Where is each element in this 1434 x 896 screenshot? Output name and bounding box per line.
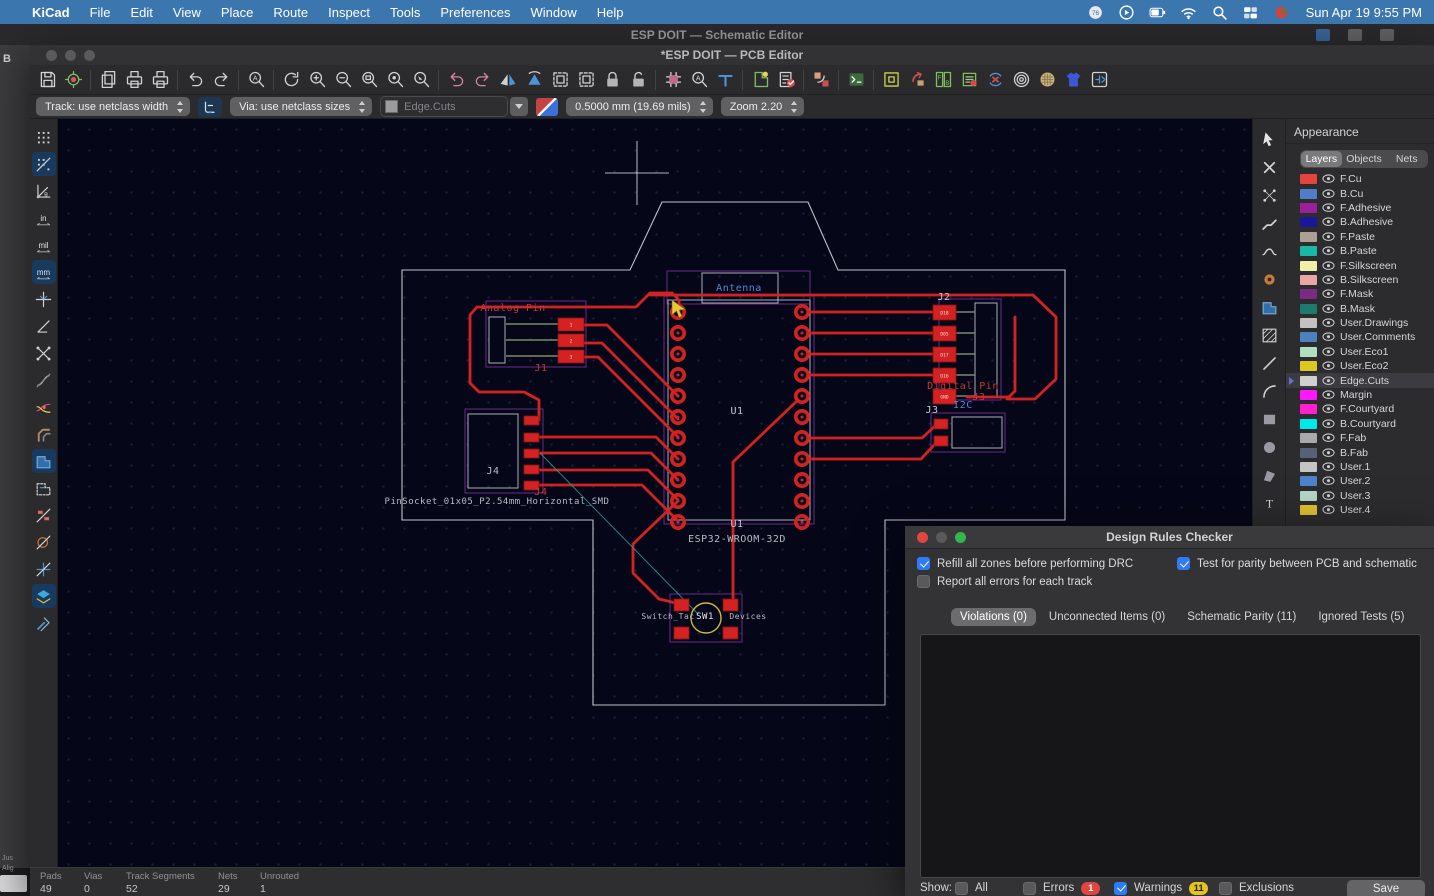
copper-trace[interactable] bbox=[731, 400, 798, 604]
add-filled-zone-tool[interactable] bbox=[1258, 295, 1282, 319]
draw-circle-tool[interactable] bbox=[1258, 435, 1282, 459]
checkbox[interactable] bbox=[1177, 557, 1190, 570]
silkscreen-label: Devices bbox=[729, 612, 766, 621]
track-width-dropdown[interactable]: Track: use netclass width bbox=[36, 97, 190, 116]
silkscreen-label: ESP32-WROOM-32D bbox=[688, 534, 786, 545]
filter-label: All bbox=[975, 882, 988, 894]
menu-view[interactable]: View bbox=[163, 5, 211, 20]
smd-pad[interactable] bbox=[674, 599, 689, 611]
rotate-ccw-button[interactable] bbox=[443, 67, 469, 93]
free-angle-mode-toggle[interactable] bbox=[32, 314, 56, 338]
battery-icon[interactable] bbox=[1149, 5, 1166, 20]
layer-row-b.cu[interactable]: B.Cu bbox=[1286, 186, 1434, 200]
status-value: 0 bbox=[84, 883, 102, 895]
menu-kicad[interactable]: KiCad bbox=[22, 5, 80, 20]
screen: ESP DOIT — Schematic Editor B Jus Alig *… bbox=[0, 0, 1434, 896]
visibility-eye-icon[interactable] bbox=[1322, 448, 1335, 458]
checkbox[interactable] bbox=[1114, 882, 1127, 895]
visibility-eye-icon[interactable] bbox=[1322, 347, 1335, 357]
layer-row-f.adhesive[interactable]: F.Adhesive bbox=[1286, 201, 1434, 215]
flip-vertical-button[interactable] bbox=[521, 67, 547, 93]
drc-tab-schematic[interactable]: Schematic Parity (11) bbox=[1178, 608, 1305, 626]
layer-name: B.Cu bbox=[1340, 188, 1363, 200]
units-mm-toggle[interactable]: mm bbox=[32, 260, 56, 284]
3d-viewer-button[interactable] bbox=[1060, 67, 1086, 93]
smd-pad[interactable] bbox=[674, 627, 689, 639]
layer-name: User.2 bbox=[1340, 475, 1370, 487]
appearance-tab-objects[interactable]: Objects bbox=[1344, 151, 1385, 167]
smd-pad[interactable] bbox=[524, 449, 539, 458]
layer-color-swatch[interactable] bbox=[1300, 491, 1317, 501]
layer-name: User.Drawings bbox=[1340, 317, 1408, 329]
status-label: Nets bbox=[218, 871, 238, 882]
zoom-to-selection-button[interactable] bbox=[408, 67, 434, 93]
layer-row-user.drawings[interactable]: User.Drawings bbox=[1286, 316, 1434, 330]
visibility-eye-icon[interactable] bbox=[1322, 505, 1335, 515]
zoom-out-button[interactable] bbox=[330, 67, 356, 93]
edit-footprints-button[interactable] bbox=[660, 67, 686, 93]
settings-toolbar: Track: use netclass width Via: use netcl… bbox=[30, 95, 1434, 119]
via-size-value: Via: use netclass sizes bbox=[239, 101, 350, 113]
play-icon[interactable] bbox=[1118, 5, 1135, 20]
drc-titlebar[interactable]: Design Rules Checker bbox=[905, 526, 1434, 549]
layer-row-user.eco2[interactable]: User.Eco2 bbox=[1286, 359, 1434, 373]
schematic-toolbar-icons bbox=[1316, 29, 1394, 41]
visibility-eye-icon[interactable] bbox=[1322, 203, 1335, 213]
pad-label: 1 bbox=[570, 323, 573, 329]
drc-option-checkbox[interactable]: Report all errors for each track bbox=[917, 575, 1092, 588]
status-label: Vias bbox=[84, 871, 102, 882]
visibility-eye-icon[interactable] bbox=[1322, 261, 1335, 271]
layer-row-b.silkscreen[interactable]: B.Silkscreen bbox=[1286, 273, 1434, 287]
layer-name: B.Fab bbox=[1340, 447, 1368, 459]
menu-edit[interactable]: Edit bbox=[121, 5, 163, 20]
layer-color-swatch[interactable] bbox=[1300, 275, 1317, 285]
menu-file[interactable]: File bbox=[80, 5, 121, 20]
smd-pad[interactable] bbox=[934, 436, 948, 446]
layer-color-swatch[interactable] bbox=[1300, 304, 1317, 314]
svg-text:θ: θ bbox=[44, 191, 48, 198]
flip-board-view-button[interactable] bbox=[878, 67, 904, 93]
layer-row-b.courtyard[interactable]: B.Courtyard bbox=[1286, 417, 1434, 431]
menubar-status-area: 76 Sun Apr 19 9:55 PM bbox=[1087, 5, 1434, 20]
pad-hole bbox=[801, 521, 804, 524]
grid-size-dropdown[interactable]: 0.5000 mm (19.69 mils) bbox=[566, 97, 713, 116]
pad-hole bbox=[677, 395, 680, 398]
layer-row-user.eco1[interactable]: User.Eco1 bbox=[1286, 345, 1434, 359]
footprint-position-file-button[interactable]: FB bbox=[930, 67, 956, 93]
layer-color-swatch[interactable] bbox=[1300, 505, 1317, 515]
units-mils-toggle[interactable]: mil bbox=[32, 233, 56, 257]
zoom-to-fit-button[interactable] bbox=[356, 67, 382, 93]
search-footprints-button[interactable]: A bbox=[686, 67, 712, 93]
pad-hole bbox=[801, 458, 804, 461]
status-track-segments: Track Segments52 bbox=[126, 871, 195, 895]
pcb-window-title: *ESP DOIT — PCB Editor bbox=[30, 48, 1434, 62]
layer-color-swatch[interactable] bbox=[1300, 361, 1317, 371]
smd-pad[interactable] bbox=[723, 627, 738, 639]
pad-hole bbox=[801, 479, 804, 482]
local-ratsnest-tool[interactable] bbox=[1258, 183, 1282, 207]
fab-outline bbox=[489, 317, 505, 363]
checkbox[interactable] bbox=[1219, 882, 1232, 895]
layer-color-swatch[interactable] bbox=[1300, 419, 1317, 429]
silkscreen-label: Digital Pin bbox=[927, 381, 999, 392]
drc-violations-list[interactable] bbox=[920, 634, 1421, 878]
page-settings-button[interactable] bbox=[95, 67, 121, 93]
pad-hole bbox=[677, 374, 680, 377]
layer-row-b.adhesive[interactable]: B.Adhesive bbox=[1286, 215, 1434, 229]
drill-origin-button[interactable] bbox=[712, 67, 738, 93]
schematic-window-titlebar[interactable]: ESP DOIT — Schematic Editor bbox=[0, 24, 1434, 46]
layer-name: F.Silkscreen bbox=[1340, 260, 1397, 272]
grid-overrides-toggle[interactable] bbox=[32, 152, 56, 176]
chevron-updown-icon bbox=[176, 101, 184, 113]
layer-row-f.fab[interactable]: F.Fab bbox=[1286, 431, 1434, 445]
flip-horizontal-button[interactable] bbox=[495, 67, 521, 93]
silkscreen-label: J4 bbox=[486, 466, 499, 477]
layer-color-swatch[interactable] bbox=[1300, 232, 1317, 242]
plugin-manager-button[interactable] bbox=[1086, 67, 1112, 93]
gauge-badge-icon[interactable]: 76 bbox=[1087, 5, 1104, 20]
silkscreen-label: Analog Pin bbox=[480, 303, 545, 314]
layer-name: User.3 bbox=[1340, 490, 1370, 502]
layer-row-b.fab[interactable]: B.Fab bbox=[1286, 445, 1434, 459]
layer-name: B.Adhesive bbox=[1340, 216, 1393, 228]
layer-row-edge.cuts[interactable]: Edge.Cuts bbox=[1286, 373, 1434, 387]
layer-name: Edge.Cuts bbox=[1340, 375, 1389, 387]
flag-icon[interactable] bbox=[1273, 5, 1290, 20]
drc-tab-unconnected[interactable]: Unconnected Items (0) bbox=[1040, 608, 1174, 626]
svg-text:T: T bbox=[1266, 496, 1274, 510]
visibility-eye-icon[interactable] bbox=[1322, 376, 1335, 386]
group-button[interactable] bbox=[547, 67, 573, 93]
visibility-eye-icon[interactable] bbox=[1322, 462, 1335, 472]
menu-window[interactable]: Window bbox=[520, 5, 586, 20]
units-inches-toggle[interactable]: in bbox=[32, 206, 56, 230]
visibility-eye-icon[interactable] bbox=[1322, 275, 1335, 285]
full-window-crosshair-toggle[interactable] bbox=[32, 287, 56, 311]
layer-row-b.mask[interactable]: B.Mask bbox=[1286, 302, 1434, 316]
visibility-eye-icon[interactable] bbox=[1322, 476, 1335, 486]
layer-row-f.cu[interactable]: F.Cu bbox=[1286, 172, 1434, 186]
track-width-value: Track: use netclass width bbox=[45, 101, 168, 113]
layer-color-swatch[interactable] bbox=[1300, 462, 1317, 472]
select-tool[interactable] bbox=[1258, 127, 1282, 151]
drc-filter-errors[interactable]: Errors1 bbox=[1023, 882, 1100, 895]
active-layer-combo[interactable]: Edge.Cuts bbox=[380, 96, 508, 117]
board-setup-button[interactable] bbox=[60, 67, 86, 93]
layer-color-swatch[interactable] bbox=[1300, 217, 1317, 227]
pad-hole bbox=[677, 458, 680, 461]
pad-hole bbox=[801, 353, 804, 356]
menu-help[interactable]: Help bbox=[587, 5, 634, 20]
zoom-in-button[interactable] bbox=[304, 67, 330, 93]
layer-pair-icon[interactable] bbox=[536, 98, 558, 116]
svg-text:76: 76 bbox=[1092, 10, 1100, 17]
silkscreen-label: J1 bbox=[534, 363, 547, 374]
drc-tab-ignored[interactable]: Ignored Tests (5) bbox=[1309, 608, 1413, 626]
polar-coordinates-toggle[interactable]: θ bbox=[32, 179, 56, 203]
menu-preferences[interactable]: Preferences bbox=[430, 5, 520, 20]
pad-label: D05 bbox=[940, 332, 948, 338]
layer-color-swatch[interactable] bbox=[1300, 189, 1317, 199]
layer-name: F.Cu bbox=[1340, 173, 1362, 185]
status-label: Unrouted bbox=[260, 871, 299, 882]
background-window-edge: B Jus Alig bbox=[0, 45, 30, 868]
schematic-mini-icon bbox=[1316, 29, 1330, 41]
pad-hole bbox=[677, 500, 680, 503]
sliver-text: Jus bbox=[2, 855, 13, 862]
via-size-dropdown[interactable]: Via: use netclass sizes bbox=[230, 97, 372, 116]
draw-polygon-tool[interactable] bbox=[1258, 463, 1282, 487]
layer-color-swatch[interactable] bbox=[1300, 476, 1317, 486]
status-pads: Pads49 bbox=[40, 871, 62, 895]
pad-label: D17 bbox=[940, 353, 948, 359]
menu-route[interactable]: Route bbox=[263, 5, 318, 20]
zone-outline-display-toggle[interactable] bbox=[32, 476, 56, 500]
zone-fill-display-toggle[interactable] bbox=[32, 449, 56, 473]
curved-ratsnest-toggle[interactable] bbox=[32, 368, 56, 392]
interactive-delete-tool[interactable] bbox=[1258, 155, 1282, 179]
refresh-button[interactable] bbox=[278, 67, 304, 93]
drc-filter-warnings[interactable]: Warnings11 bbox=[1114, 882, 1208, 895]
silkscreen-label: U1 bbox=[730, 519, 743, 530]
layer-row-f.courtyard[interactable]: F.Courtyard bbox=[1286, 402, 1434, 416]
drc-filter-all[interactable]: All bbox=[955, 882, 988, 895]
drc-option-checkbox[interactable]: Test for parity between PCB and schemati… bbox=[1177, 557, 1417, 570]
drc-option-checkbox[interactable]: Refill all zones before performing DRC bbox=[917, 557, 1133, 570]
layer-name: User.Eco2 bbox=[1340, 360, 1388, 372]
count-badge: 11 bbox=[1189, 882, 1208, 895]
zoom-level-dropdown[interactable]: Zoom 2.20 bbox=[721, 97, 805, 116]
smd-pad[interactable] bbox=[524, 465, 539, 474]
wifi-icon[interactable] bbox=[1180, 5, 1197, 20]
layer-color-swatch[interactable] bbox=[1300, 347, 1317, 357]
ratsnest-visibility-toggle[interactable] bbox=[32, 341, 56, 365]
svg-text:A: A bbox=[252, 75, 257, 82]
smd-pad[interactable] bbox=[524, 433, 539, 442]
pad-label: 3 bbox=[570, 355, 573, 361]
visibility-eye-icon[interactable] bbox=[1322, 419, 1335, 429]
visibility-eye-icon[interactable] bbox=[1322, 246, 1335, 256]
print-button[interactable] bbox=[121, 67, 147, 93]
high-contrast-mode-toggle[interactable] bbox=[32, 584, 56, 608]
layer-row-user.1[interactable]: User.1 bbox=[1286, 460, 1434, 474]
menu-tools[interactable]: Tools bbox=[380, 5, 430, 20]
pad-hole bbox=[677, 332, 680, 335]
scripting-console-button[interactable] bbox=[843, 67, 869, 93]
smd-pad[interactable] bbox=[723, 599, 738, 611]
layer-color-swatch[interactable] bbox=[1300, 246, 1317, 256]
layer-color-swatch[interactable] bbox=[1300, 433, 1317, 443]
visibility-eye-icon[interactable] bbox=[1322, 189, 1335, 199]
layer-color-swatch[interactable] bbox=[1300, 174, 1317, 184]
visibility-eye-icon[interactable] bbox=[1322, 390, 1335, 400]
draw-rectangle-tool[interactable] bbox=[1258, 407, 1282, 431]
silkscreen-label: J2 bbox=[937, 292, 950, 303]
status-label: Track Segments bbox=[126, 871, 195, 882]
find-button[interactable]: A bbox=[243, 67, 269, 93]
layer-row-f.paste[interactable]: F.Paste bbox=[1286, 230, 1434, 244]
layer-name: User.1 bbox=[1340, 461, 1370, 473]
pad-label: GND bbox=[940, 395, 948, 401]
pad-label: D18 bbox=[940, 311, 948, 317]
show-label: Show: bbox=[920, 882, 952, 894]
pad-sketch-mode-toggle[interactable] bbox=[32, 503, 56, 527]
copper-trace[interactable] bbox=[539, 437, 678, 459]
layer-color-swatch[interactable] bbox=[1300, 448, 1317, 458]
update-pcb-from-schematic-button[interactable] bbox=[747, 67, 773, 93]
layer-color-swatch[interactable] bbox=[1300, 376, 1317, 386]
svg-text:mil: mil bbox=[38, 240, 48, 249]
track-posture-button[interactable] bbox=[198, 97, 222, 117]
layer-name: B.Mask bbox=[1340, 303, 1375, 315]
grid-visibility-toggle[interactable] bbox=[32, 125, 56, 149]
filter-label: Errors bbox=[1043, 882, 1074, 894]
pad-hole bbox=[677, 521, 680, 524]
layer-name: User.Eco1 bbox=[1340, 346, 1388, 358]
checkbox[interactable] bbox=[917, 557, 930, 570]
chevron-updown-icon bbox=[358, 101, 366, 113]
layer-row-b.paste[interactable]: B.Paste bbox=[1286, 244, 1434, 258]
layer-color-swatch[interactable] bbox=[1300, 289, 1317, 299]
schematic-mini-icon bbox=[1380, 29, 1394, 41]
svg-text:in: in bbox=[40, 213, 46, 222]
copper-trace[interactable] bbox=[539, 453, 678, 480]
draw-arc-tool[interactable] bbox=[1258, 379, 1282, 403]
pcb-window-titlebar[interactable]: *ESP DOIT — PCB Editor bbox=[30, 45, 1434, 66]
layer-color-swatch[interactable] bbox=[1300, 332, 1317, 342]
layer-name: F.Courtyard bbox=[1340, 403, 1394, 415]
visibility-eye-icon[interactable] bbox=[1322, 491, 1335, 501]
appearance-tab-nets[interactable]: Nets bbox=[1386, 151, 1427, 167]
save-button[interactable]: Save bbox=[1347, 880, 1425, 896]
layer-name: F.Adhesive bbox=[1340, 202, 1391, 214]
checkbox[interactable] bbox=[955, 882, 968, 895]
displays-icon[interactable] bbox=[1242, 5, 1259, 20]
add-via-tool[interactable] bbox=[1258, 267, 1282, 291]
layer-row-margin[interactable]: Margin bbox=[1286, 388, 1434, 402]
visibility-eye-icon[interactable] bbox=[1322, 174, 1335, 184]
layer-row-user.3[interactable]: User.3 bbox=[1286, 489, 1434, 503]
svg-text:F: F bbox=[937, 75, 941, 82]
unlock-button[interactable] bbox=[625, 67, 651, 93]
layer-color-swatch[interactable] bbox=[1300, 203, 1317, 213]
checkbox[interactable] bbox=[1023, 882, 1036, 895]
pad-hole bbox=[677, 353, 680, 356]
visibility-eye-icon[interactable] bbox=[1322, 304, 1335, 314]
status-label: Pads bbox=[40, 871, 62, 882]
undo-button[interactable] bbox=[182, 67, 208, 93]
route-tracks-tool[interactable] bbox=[1258, 211, 1282, 235]
layers-list: F.CuB.CuF.AdhesiveB.AdhesiveF.PasteB.Pas… bbox=[1286, 172, 1434, 517]
pad-hole bbox=[677, 479, 680, 482]
layer-color-swatch[interactable] bbox=[1300, 390, 1317, 400]
checkbox[interactable] bbox=[917, 575, 930, 588]
sync-schematic-button[interactable] bbox=[982, 67, 1008, 93]
visibility-eye-icon[interactable] bbox=[1322, 433, 1335, 443]
back-annotate-button[interactable] bbox=[904, 67, 930, 93]
ungroup-button[interactable] bbox=[573, 67, 599, 93]
track-display-mode-toggle[interactable] bbox=[32, 422, 56, 446]
visibility-eye-icon[interactable] bbox=[1322, 318, 1335, 328]
appearance-title: Appearance bbox=[1286, 119, 1434, 144]
footprint-checker-button[interactable] bbox=[956, 67, 982, 93]
visibility-eye-icon[interactable] bbox=[1322, 217, 1335, 227]
swap-layers-button[interactable] bbox=[808, 67, 834, 93]
appearance-tabs: LayersObjectsNets bbox=[1300, 150, 1428, 168]
via-sketch-mode-toggle[interactable] bbox=[32, 530, 56, 554]
tune-length-tool[interactable] bbox=[1258, 239, 1282, 263]
add-text-tool[interactable]: T bbox=[1258, 491, 1282, 515]
layer-row-user.2[interactable]: User.2 bbox=[1286, 474, 1434, 488]
visibility-eye-icon[interactable] bbox=[1322, 361, 1335, 371]
status-value: 49 bbox=[40, 883, 62, 895]
layer-row-user.4[interactable]: User.4 bbox=[1286, 503, 1434, 517]
plot-button[interactable] bbox=[147, 67, 173, 93]
checkbox-label: Refill all zones before performing DRC bbox=[937, 558, 1133, 570]
zone-display-button[interactable] bbox=[1008, 67, 1034, 93]
appearance-tab-layers[interactable]: Layers bbox=[1301, 151, 1342, 167]
layer-row-f.mask[interactable]: F.Mask bbox=[1286, 287, 1434, 301]
layer-name: User.4 bbox=[1340, 504, 1370, 516]
visibility-eye-icon[interactable] bbox=[1322, 232, 1335, 242]
layer-color-swatch[interactable] bbox=[1300, 404, 1317, 414]
visibility-eye-icon[interactable] bbox=[1322, 332, 1335, 342]
pad-hole bbox=[801, 311, 804, 314]
drc-dialog-title: Design Rules Checker bbox=[905, 530, 1434, 544]
layer-color-swatch[interactable] bbox=[1300, 318, 1317, 328]
pad-hole bbox=[677, 416, 680, 419]
smd-pad[interactable] bbox=[934, 419, 948, 429]
search-icon[interactable] bbox=[1211, 5, 1228, 20]
redo-button[interactable] bbox=[208, 67, 234, 93]
menu-place[interactable]: Place bbox=[211, 5, 264, 20]
properties-panel-toggle[interactable] bbox=[32, 611, 56, 635]
design-rules-checker-button[interactable] bbox=[773, 67, 799, 93]
smd-pad[interactable] bbox=[524, 416, 539, 425]
status-value: 29 bbox=[218, 883, 238, 895]
drc-tab-violations[interactable]: Violations (0) bbox=[951, 608, 1036, 626]
visibility-eye-icon[interactable] bbox=[1322, 289, 1335, 299]
layer-dropdown-button[interactable] bbox=[510, 97, 528, 116]
lock-button[interactable] bbox=[599, 67, 625, 93]
copper-trace[interactable] bbox=[810, 425, 941, 438]
layer-color-swatch[interactable] bbox=[1300, 261, 1317, 271]
track-sketch-mode-toggle[interactable] bbox=[32, 557, 56, 581]
net-color-mode-toggle[interactable] bbox=[32, 395, 56, 419]
layer-row-user.comments[interactable]: User.Comments bbox=[1286, 330, 1434, 344]
filter-label: Exclusions bbox=[1239, 882, 1294, 894]
layer-row-f.silkscreen[interactable]: F.Silkscreen bbox=[1286, 258, 1434, 272]
layer-name: B.Silkscreen bbox=[1340, 274, 1398, 286]
draw-line-tool[interactable] bbox=[1258, 351, 1282, 375]
freeroute-button[interactable] bbox=[1034, 67, 1060, 93]
copper-trace[interactable] bbox=[810, 443, 941, 459]
zoom-to-objects-button[interactable] bbox=[382, 67, 408, 93]
rotate-cw-button[interactable] bbox=[469, 67, 495, 93]
pad-hole bbox=[801, 500, 804, 503]
status-value: 1 bbox=[260, 883, 299, 895]
layer-name: F.Mask bbox=[1340, 288, 1373, 300]
drc-filter-exclusions[interactable]: Exclusions bbox=[1219, 882, 1294, 895]
visibility-eye-icon[interactable] bbox=[1322, 404, 1335, 414]
save-button[interactable] bbox=[34, 67, 60, 93]
fab-outline bbox=[952, 417, 1002, 448]
menu-inspect[interactable]: Inspect bbox=[318, 5, 380, 20]
add-rule-area-tool[interactable] bbox=[1258, 323, 1282, 347]
